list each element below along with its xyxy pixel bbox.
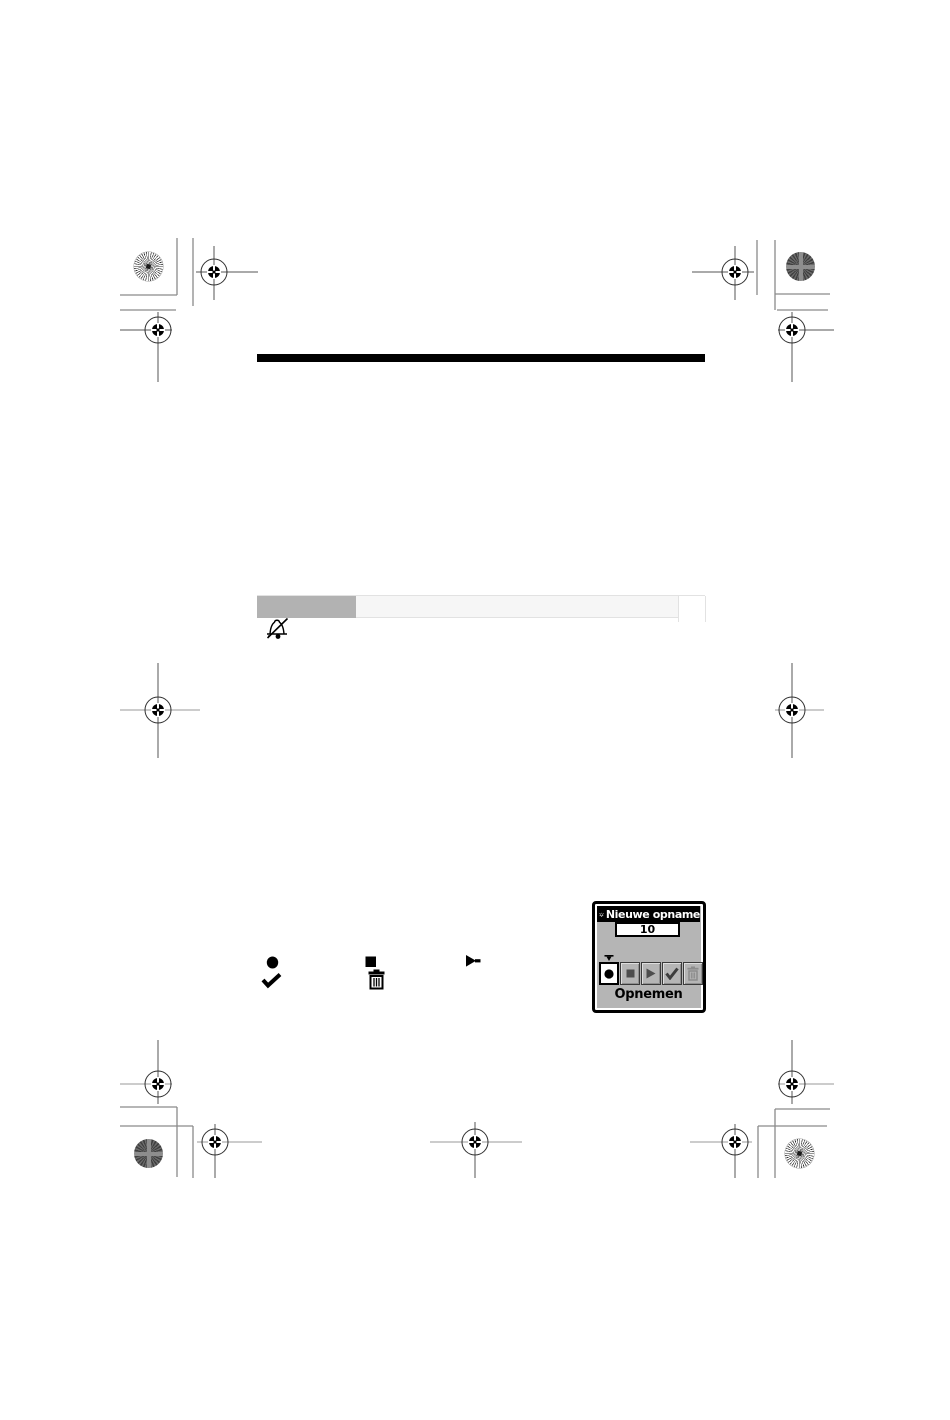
registration-target xyxy=(692,246,754,300)
trash-icon xyxy=(367,969,386,990)
registration-target xyxy=(778,312,834,382)
bell-slash-icon xyxy=(264,616,291,641)
record-button[interactable] xyxy=(599,962,619,985)
check-icon xyxy=(665,967,679,980)
print-marks-layer xyxy=(0,0,950,1420)
manual-page: Nieuwe opname 10 xyxy=(0,0,950,1420)
registration-target xyxy=(775,663,824,758)
texture-patch xyxy=(134,1139,163,1168)
registration-target xyxy=(197,1124,262,1178)
dialog-title-bar: Nieuwe opname xyxy=(597,906,700,922)
texture-patch xyxy=(786,252,815,281)
record-icon xyxy=(604,969,614,979)
stop-icon xyxy=(626,969,635,978)
record-icon xyxy=(266,956,279,969)
note-header-row-fill xyxy=(356,596,678,618)
alarm-bell-icon xyxy=(599,908,604,921)
confirm-button[interactable] xyxy=(662,962,682,985)
dialog-button-row xyxy=(599,962,703,985)
selected-button-indicator xyxy=(604,955,614,962)
registration-target xyxy=(778,1040,834,1104)
dialog-action-label: Opnemen xyxy=(595,987,702,1002)
note-header-end-cell xyxy=(678,596,706,622)
play-icon xyxy=(646,968,656,979)
new-recording-dialog: Nieuwe opname 10 xyxy=(592,901,706,1013)
check-icon xyxy=(261,972,282,989)
delete-button[interactable] xyxy=(683,962,703,985)
registration-target xyxy=(120,663,200,758)
play-button[interactable] xyxy=(641,962,661,985)
stop-button[interactable] xyxy=(620,962,640,985)
registration-target xyxy=(690,1124,752,1178)
stop-icon xyxy=(365,956,377,968)
starburst-patch xyxy=(785,1139,814,1168)
note-header-highlight-cell xyxy=(257,596,356,618)
dialog-title: Nieuwe opname xyxy=(606,908,700,921)
section-divider-rule xyxy=(257,354,705,362)
note-header-row xyxy=(257,595,705,619)
recording-number-field[interactable]: 10 xyxy=(615,922,680,937)
registration-target xyxy=(120,312,172,382)
registration-target xyxy=(196,246,258,300)
starburst-patch xyxy=(134,252,163,281)
play-icon xyxy=(466,954,481,968)
registration-target xyxy=(430,1122,522,1178)
registration-target xyxy=(120,1040,172,1104)
trash-icon xyxy=(686,966,700,981)
